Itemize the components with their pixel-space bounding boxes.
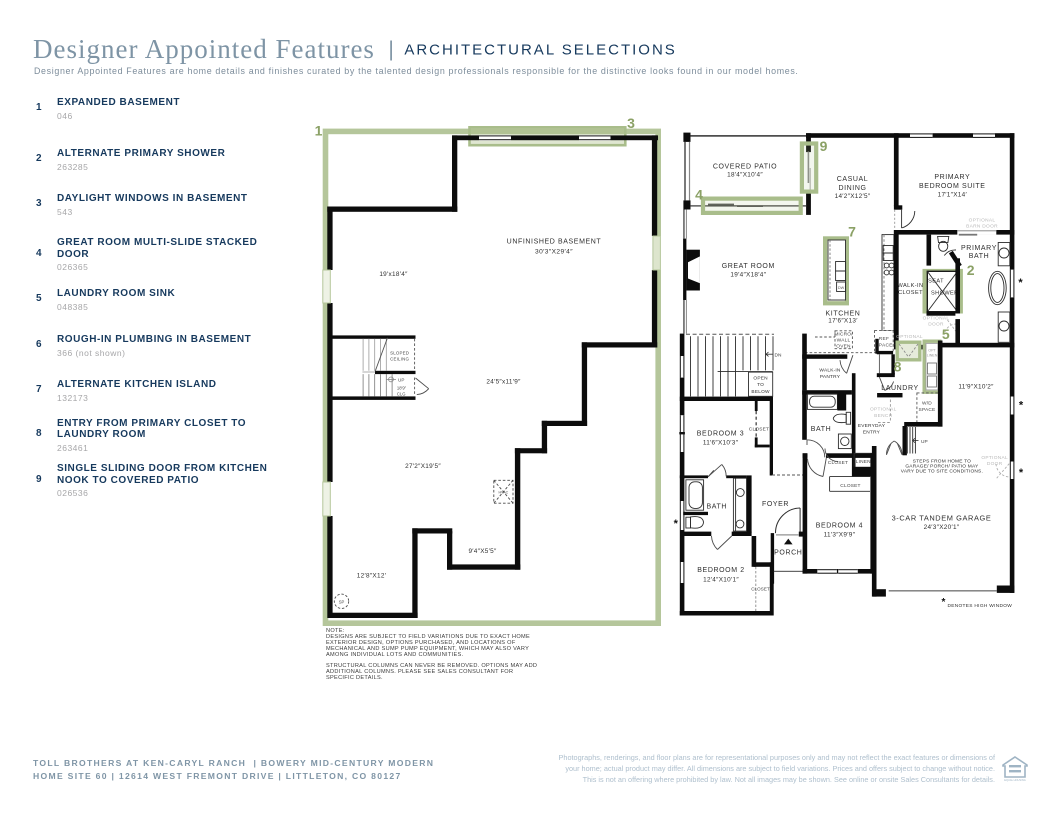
svg-text:DOOR: DOOR — [987, 461, 1003, 467]
svg-text:3-CAR TANDEM GARAGE: 3-CAR TANDEM GARAGE — [892, 514, 992, 523]
svg-text:11′9″X10′2″: 11′9″X10′2″ — [958, 384, 994, 391]
svg-text:8: 8 — [894, 358, 902, 374]
svg-text:11′3″X9′9″: 11′3″X9′9″ — [824, 532, 856, 539]
svg-text:MICRO/: MICRO/ — [834, 331, 853, 337]
svg-text:WALL: WALL — [837, 337, 851, 343]
svg-text:W/D: W/D — [922, 401, 932, 407]
svg-text:COVERED PATIO: COVERED PATIO — [713, 164, 777, 171]
svg-text:*: * — [1018, 277, 1023, 289]
svg-text:9: 9 — [820, 138, 828, 154]
svg-text:5: 5 — [942, 326, 950, 342]
svg-text:BARN DOOR: BARN DOOR — [966, 224, 998, 230]
svg-text:17′6″X13′: 17′6″X13′ — [828, 317, 858, 324]
svg-text:SEAT: SEAT — [928, 279, 944, 285]
svg-text:24′5″x11′9″: 24′5″x11′9″ — [486, 379, 521, 386]
svg-text:LAUNDRY: LAUNDRY — [881, 385, 919, 392]
svg-text:OPT: OPT — [928, 349, 936, 353]
svg-text:CLOSET: CLOSET — [898, 290, 923, 296]
svg-text:CEILING: CEILING — [390, 356, 409, 361]
svg-text:*: * — [942, 597, 946, 608]
svg-text:REF: REF — [879, 336, 890, 342]
svg-text:30′3″X29′4″: 30′3″X29′4″ — [535, 249, 573, 256]
svg-text:FOYER: FOYER — [762, 501, 789, 508]
svg-text:OPTIONAL: OPTIONAL — [870, 407, 897, 413]
svg-text:*: * — [674, 518, 679, 530]
svg-text:TO: TO — [757, 382, 764, 388]
svg-text:BEDROOM 2: BEDROOM 2 — [697, 567, 744, 574]
svg-text:BENCH: BENCH — [874, 413, 893, 419]
svg-text:2: 2 — [967, 262, 975, 278]
svg-text:SLOPED: SLOPED — [390, 351, 409, 356]
svg-text:SP: SP — [339, 599, 345, 604]
svg-text:OPTIONAL: OPTIONAL — [923, 316, 950, 322]
svg-text:24′3″X20′1″: 24′3″X20′1″ — [924, 524, 960, 531]
svg-text:PORCH: PORCH — [774, 550, 802, 557]
svg-text:1: 1 — [315, 123, 323, 139]
svg-text:BATH: BATH — [707, 504, 728, 511]
svg-text:EVERYDAY: EVERYDAY — [858, 423, 886, 429]
svg-text:3: 3 — [627, 115, 635, 131]
svg-text:DN: DN — [775, 353, 782, 359]
svg-text:7: 7 — [848, 223, 856, 239]
svg-text:ENTRY: ENTRY — [863, 430, 881, 436]
svg-text:PRIMARY: PRIMARY — [934, 174, 970, 181]
svg-text:LINEN: LINEN — [927, 354, 938, 358]
svg-text:UP: UP — [921, 439, 928, 445]
svg-text:*: * — [1019, 467, 1024, 479]
svg-text:CLG: CLG — [397, 391, 406, 396]
svg-text:OVEN: OVEN — [836, 343, 851, 349]
svg-text:OPEN: OPEN — [753, 376, 768, 382]
svg-text:18′4″X10′4″: 18′4″X10′4″ — [727, 172, 763, 179]
svg-text:UP: UP — [398, 377, 404, 382]
svg-text:GREAT ROOM: GREAT ROOM — [722, 263, 775, 270]
svg-text:27′2″X19′5″: 27′2″X19′5″ — [405, 463, 441, 470]
svg-text:WALK-IN: WALK-IN — [898, 283, 924, 289]
svg-text:DINING: DINING — [838, 185, 866, 192]
svg-text:CLOSET: CLOSET — [751, 587, 770, 592]
svg-text:4: 4 — [695, 186, 703, 202]
svg-text:CLOSET: CLOSET — [749, 427, 769, 433]
svg-text:LINEN: LINEN — [856, 459, 871, 465]
svg-text:14′2″X12′5″: 14′2″X12′5″ — [835, 193, 871, 200]
svg-text:CASUAL: CASUAL — [837, 176, 869, 183]
svg-text:OPTIONAL: OPTIONAL — [896, 334, 923, 340]
svg-text:12′8″X12′: 12′8″X12′ — [357, 573, 387, 580]
svg-text:17′1″X14′: 17′1″X14′ — [938, 191, 968, 198]
svg-text:SHOWER: SHOWER — [931, 291, 959, 297]
svg-text:12′4″X10′1″: 12′4″X10′1″ — [703, 576, 739, 583]
svg-text:WALK-IN: WALK-IN — [819, 367, 841, 373]
svg-text:VARY DUE TO SITE CONDITIONS.: VARY DUE TO SITE CONDITIONS. — [901, 469, 983, 475]
svg-text:*: * — [1019, 400, 1024, 412]
svg-text:DW: DW — [838, 286, 845, 290]
svg-text:CLOSET: CLOSET — [840, 483, 860, 489]
svg-text:BATH: BATH — [969, 253, 990, 260]
svg-text:19′4″X18′4″: 19′4″X18′4″ — [730, 271, 766, 278]
svg-text:DENOTES HIGH WINDOW: DENOTES HIGH WINDOW — [948, 603, 1013, 609]
svg-text:9′4″X5′5″: 9′4″X5′5″ — [468, 548, 497, 555]
svg-text:OPTIONAL: OPTIONAL — [969, 218, 996, 224]
svg-text:19′x18′4″: 19′x18′4″ — [379, 271, 408, 278]
svg-text:HVAC: HVAC — [499, 491, 509, 495]
svg-text:CLOSET: CLOSET — [828, 460, 848, 466]
svg-text:OPTIONAL: OPTIONAL — [981, 455, 1008, 461]
svg-text:SPACE: SPACE — [919, 407, 936, 413]
svg-text:PANTRY: PANTRY — [820, 374, 841, 380]
svg-text:UNFINISHED BASEMENT: UNFINISHED BASEMENT — [507, 239, 602, 246]
svg-text:BEDROOM 3: BEDROOM 3 — [697, 431, 744, 438]
svg-text:BEDROOM SUITE: BEDROOM SUITE — [919, 183, 986, 190]
svg-text:18′9″: 18′9″ — [397, 385, 407, 390]
svg-text:BELOW: BELOW — [751, 389, 770, 395]
svg-text:BEDROOM 4: BEDROOM 4 — [816, 523, 863, 530]
svg-text:BATH: BATH — [811, 426, 832, 433]
svg-text:GARAGE/ PORCH/ PATIO MAY: GARAGE/ PORCH/ PATIO MAY — [905, 464, 979, 470]
svg-text:STEPS FROM HOME TO: STEPS FROM HOME TO — [913, 458, 971, 464]
svg-text:PRIMARY: PRIMARY — [961, 245, 997, 252]
svg-text:11′6″X10′3″: 11′6″X10′3″ — [703, 440, 739, 447]
